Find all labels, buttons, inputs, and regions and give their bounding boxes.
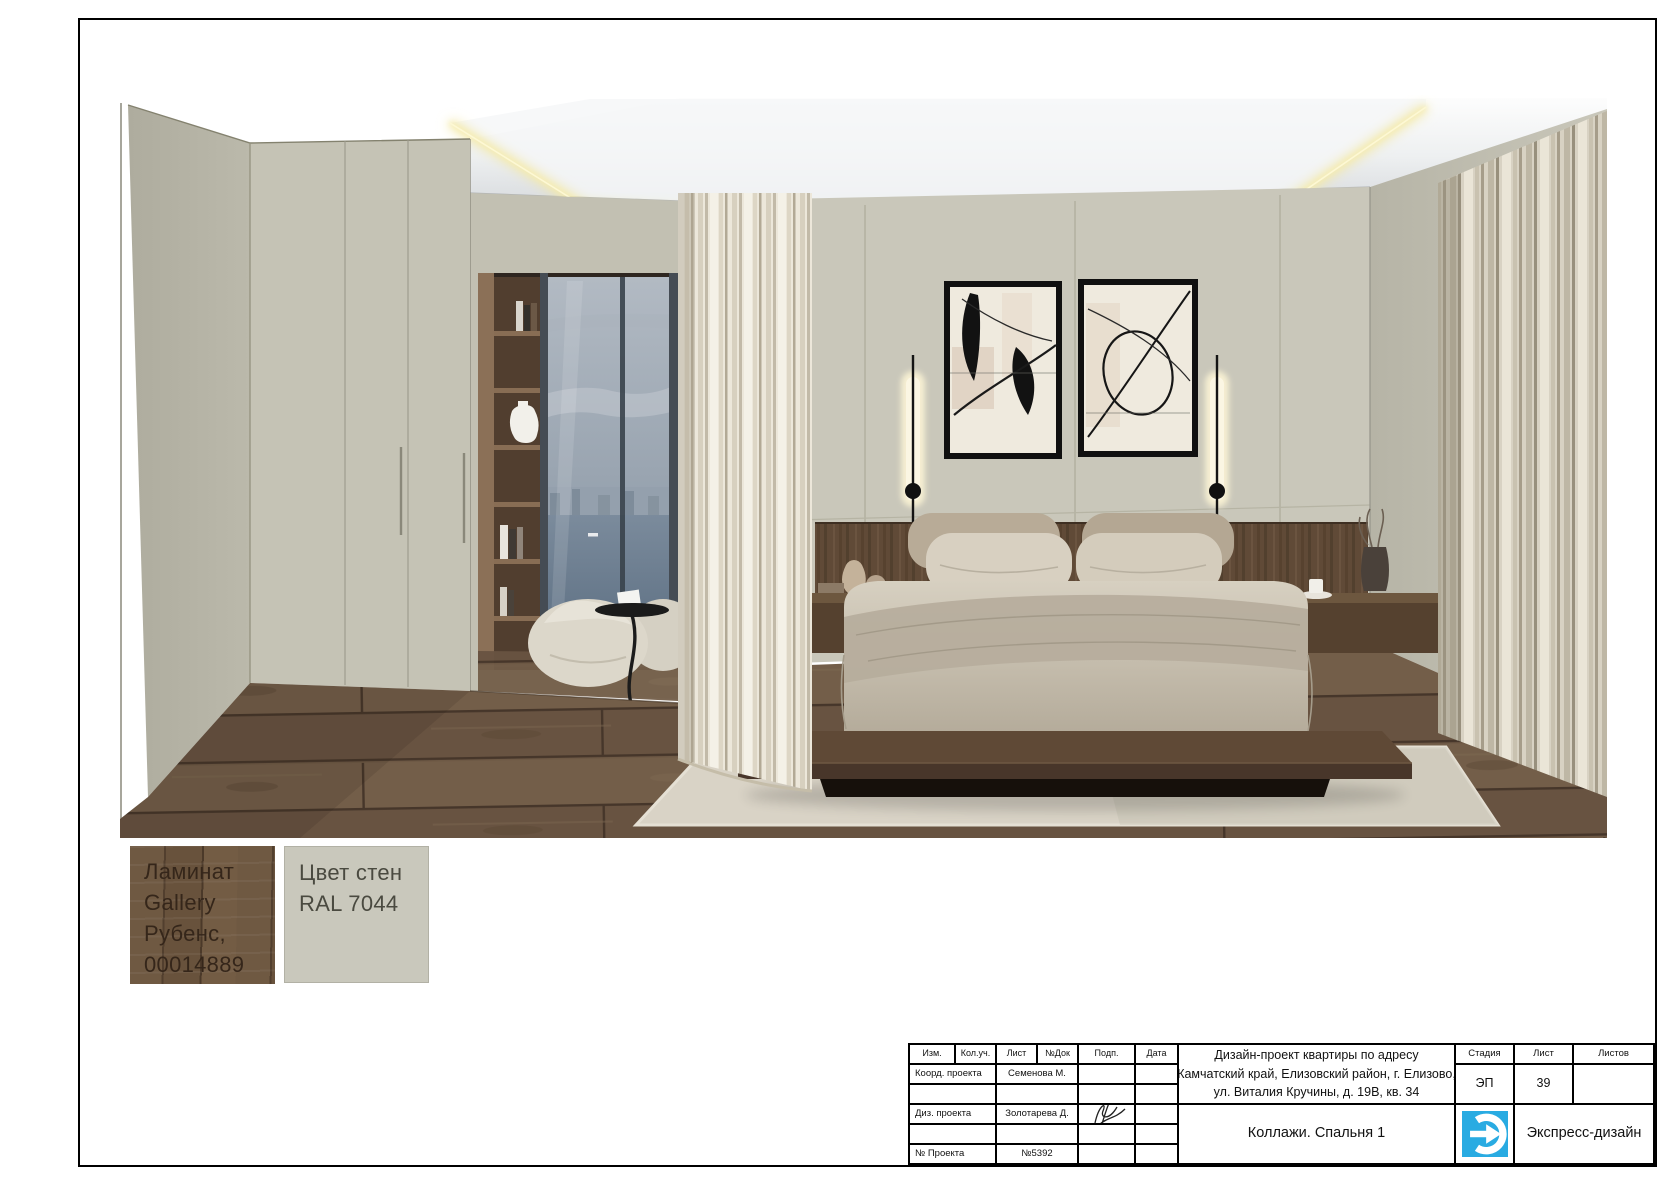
wall-paint-label-line: RAL 7044 [299,888,422,919]
bedroom-collage [120,95,1607,840]
window-mullion [540,273,548,670]
tb-empty-cell [910,1125,995,1143]
tb-company-name: Экспресс-дизайн [1515,1105,1653,1163]
box [818,583,844,593]
curtain-right [1438,111,1607,797]
laminate-label-line: 00014889 [144,949,269,980]
laminate-label-line: Рубенс, [144,918,269,949]
title-block: Изм. Кол.уч. Лист №Док Подп. Дата Дизайн… [908,1043,1655,1165]
book [531,303,537,331]
curtain-center [678,193,812,791]
book [500,587,507,616]
laminate-label-line: Gallery [144,887,269,918]
artwork-right [1078,279,1198,457]
tb-empty-cell [1079,1145,1134,1163]
book [508,590,514,616]
tb-col-data: Дата [1136,1045,1177,1063]
tb-empty-cell [1136,1105,1177,1123]
laminate-swatch: Ламинат Gallery Рубенс, 00014889 [130,846,275,984]
tb-stage-value: ЭП [1456,1065,1513,1103]
tb-empty-cell [997,1085,1077,1103]
project-address-line: Дизайн-проект квартиры по адресу [1214,1046,1418,1065]
book [509,529,516,559]
project-address-line: Камчатский край, Елизовский район, г. Ел… [1179,1065,1454,1084]
tb-col-list: Лист [997,1045,1036,1063]
design-sheet: Ламинат Gallery Рубенс, 00014889 Цвет ст… [0,0,1680,1187]
laminate-label-line: Ламинат [144,856,269,887]
book [517,527,523,559]
tb-stage-label: Стадия [1456,1045,1513,1063]
wall-paint-label-line: Цвет стен [299,857,422,888]
project-address-line: ул. Виталия Кручины, д. 19В, кв. 34 [1214,1083,1420,1102]
tb-name-coord: Семенова М. [997,1065,1077,1083]
vase [510,405,539,443]
signature [1085,1105,1131,1123]
tb-role-diz: Диз. проекта [910,1105,995,1123]
ship [588,533,598,537]
express-design-logo-icon [1462,1110,1508,1158]
reading-nook [478,273,699,711]
tb-sheets-value [1574,1065,1653,1103]
wall-paint-swatch: Цвет стен RAL 7044 [284,846,429,983]
tb-project-address: Дизайн-проект квартиры по адресу Камчатс… [1179,1045,1454,1103]
tb-sheet-value: 39 [1515,1065,1572,1103]
tb-col-koluch: Кол.уч. [956,1045,995,1063]
tb-logo-cell [1456,1105,1513,1163]
tb-col-ndok: №Док [1038,1045,1077,1063]
cup [1309,579,1323,593]
tb-date-cell [1136,1065,1177,1083]
tb-role-num: № Проекта [910,1145,995,1163]
book [500,525,508,559]
tb-col-izm: Изм. [910,1045,954,1063]
tb-empty-cell [1079,1085,1134,1103]
tb-name-diz: Золотарева Д. [997,1105,1077,1123]
tb-empty-cell [1136,1125,1177,1143]
book [524,305,530,331]
bookshelf [478,273,542,670]
tb-name-num: №5392 [997,1145,1077,1163]
book [516,301,523,331]
bed-platform [738,731,1412,797]
tb-empty-cell [1079,1125,1134,1143]
tb-sheet-label: Лист [1515,1045,1572,1063]
render-area [120,95,1607,840]
sconce-right [1205,355,1229,525]
tb-role-coord: Коорд. проекта [910,1065,995,1083]
tb-sign-cell [1079,1065,1134,1083]
tb-empty-cell [997,1125,1077,1143]
tb-sheets-label: Листов [1574,1045,1653,1063]
tb-col-podp: Подп. [1079,1045,1134,1063]
sconce-left [901,355,925,525]
artwork-left [944,281,1062,459]
tb-signature-cell [1079,1105,1134,1123]
tb-empty-cell [1136,1145,1177,1163]
tb-empty-cell [1136,1085,1177,1103]
tb-empty-cell [910,1085,995,1103]
tb-drawing-title: Коллажи. Спальня 1 [1179,1105,1454,1163]
